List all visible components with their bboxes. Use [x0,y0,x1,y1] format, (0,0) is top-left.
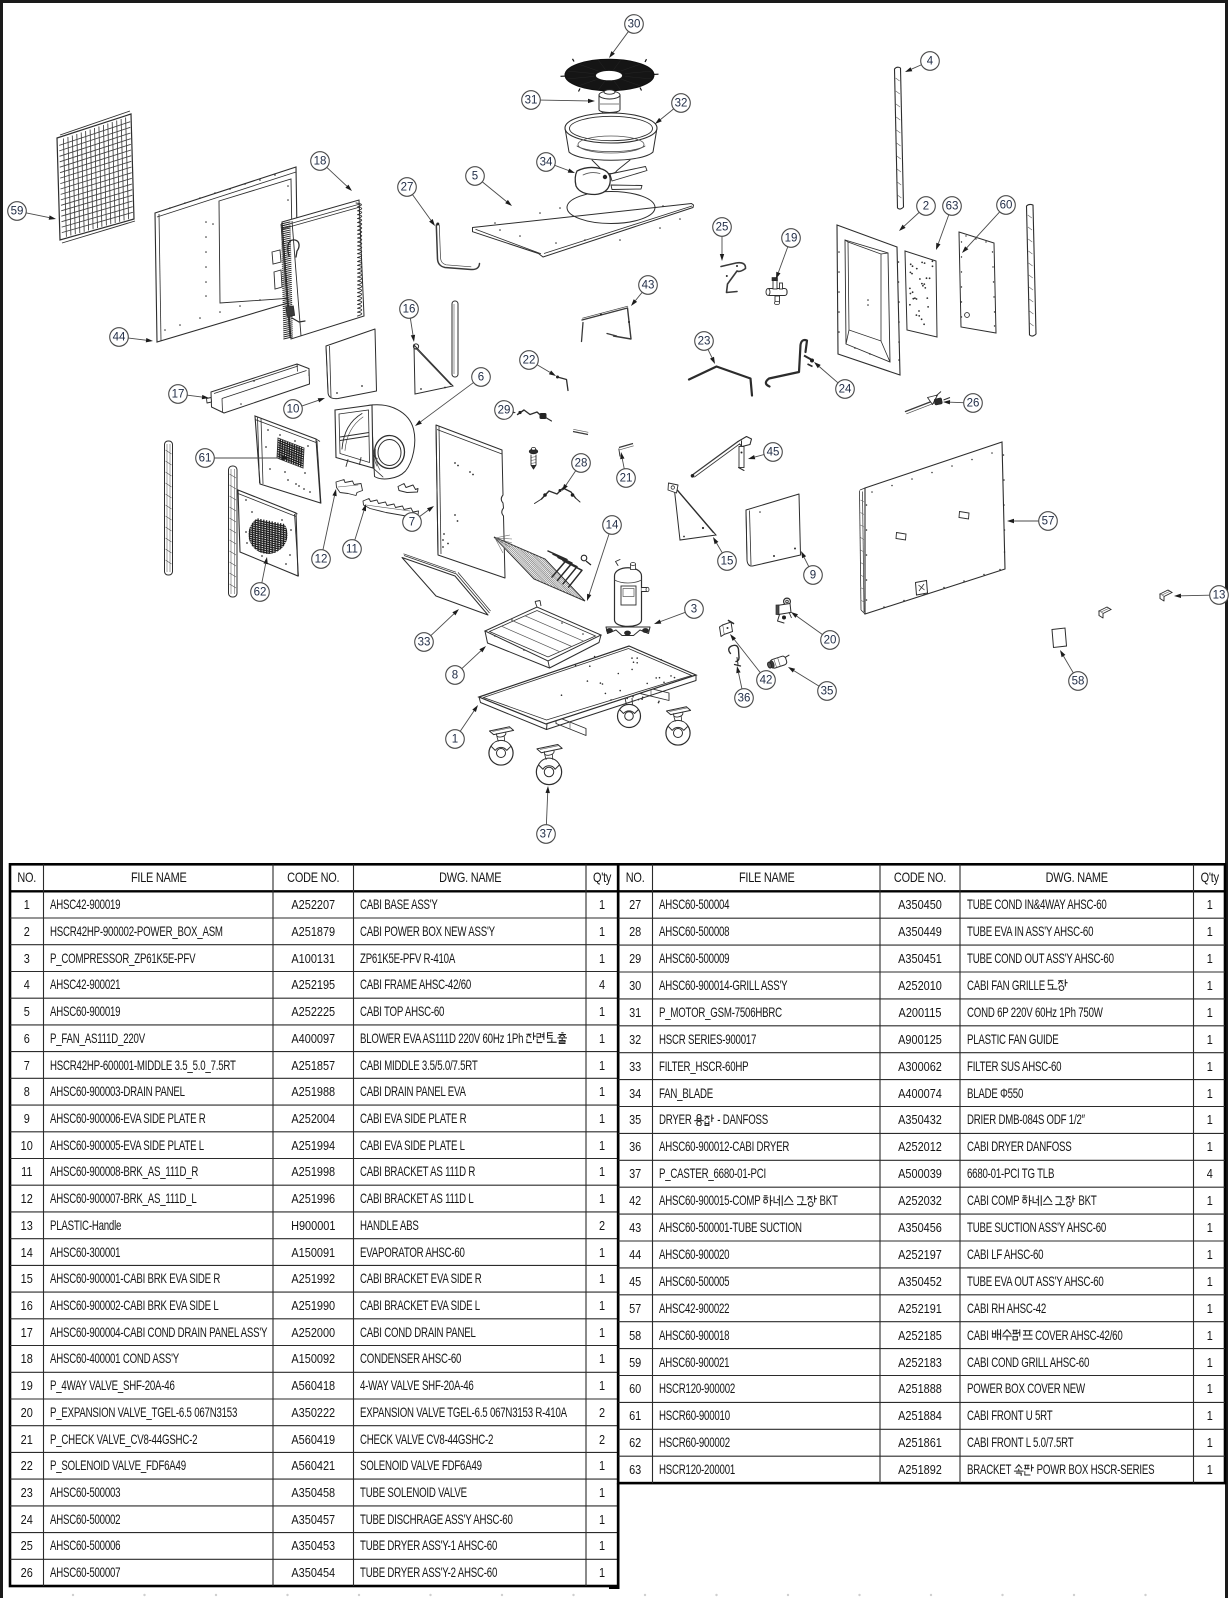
svg-text:33: 33 [418,637,431,649]
svg-text:13: 13 [1213,590,1226,602]
svg-text:36: 36 [738,693,751,705]
svg-text:10: 10 [287,404,300,416]
svg-text:34: 34 [540,157,553,169]
svg-text:12: 12 [315,554,328,566]
svg-text:61: 61 [199,453,212,465]
svg-text:18: 18 [314,156,327,168]
svg-text:22: 22 [523,355,536,367]
svg-text:14: 14 [606,520,619,532]
svg-text:26: 26 [967,398,980,410]
svg-text:2: 2 [923,201,929,213]
svg-text:16: 16 [403,304,416,316]
svg-text:3: 3 [691,604,697,616]
svg-text:63: 63 [946,201,959,213]
svg-text:59: 59 [11,206,24,218]
svg-text:60: 60 [1000,200,1013,212]
svg-text:29: 29 [498,405,511,417]
svg-text:6: 6 [478,372,484,384]
svg-text:17: 17 [172,389,185,401]
svg-text:37: 37 [540,829,553,841]
svg-text:58: 58 [1072,676,1085,688]
svg-text:8: 8 [452,670,458,682]
svg-text:9: 9 [810,570,816,582]
svg-text:1: 1 [452,734,458,746]
svg-text:19: 19 [785,233,798,245]
svg-text:44: 44 [113,332,126,344]
svg-text:7: 7 [409,517,415,529]
svg-text:35: 35 [821,686,834,698]
svg-text:43: 43 [642,280,655,292]
svg-text:5: 5 [472,171,478,183]
svg-text:20: 20 [824,635,837,647]
svg-text:31: 31 [525,95,538,107]
svg-text:42: 42 [760,675,773,687]
svg-text:30: 30 [628,19,641,31]
svg-text:32: 32 [675,98,688,110]
svg-text:23: 23 [698,336,711,348]
svg-text:15: 15 [721,556,734,568]
svg-text:4: 4 [927,56,934,68]
svg-text:25: 25 [716,222,729,234]
svg-text:11: 11 [346,544,358,556]
svg-text:28: 28 [575,458,588,470]
svg-text:57: 57 [1042,516,1055,528]
svg-text:24: 24 [839,384,852,396]
svg-text:27: 27 [401,182,414,194]
svg-text:45: 45 [767,447,780,459]
svg-text:62: 62 [254,587,267,599]
svg-text:21: 21 [620,473,633,485]
